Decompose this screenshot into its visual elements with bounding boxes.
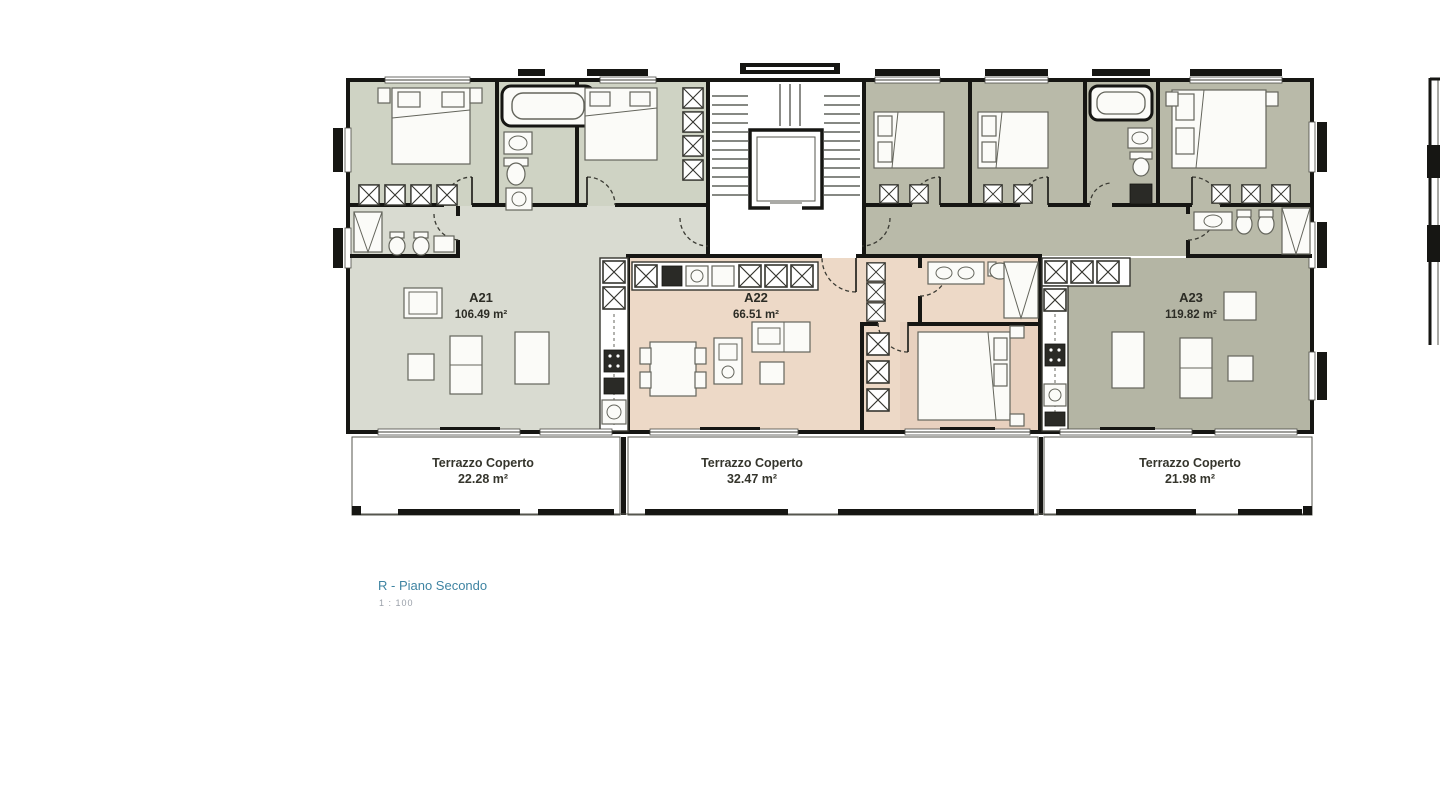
terrace-1-area: 22.28 m² xyxy=(458,472,508,486)
shower xyxy=(1282,208,1310,254)
dining-table xyxy=(640,342,706,396)
bed xyxy=(978,112,1048,168)
window-door xyxy=(1215,429,1297,435)
stair-core xyxy=(706,80,866,258)
canopy-bar xyxy=(875,69,940,76)
terrace-2-area: 32.47 m² xyxy=(727,472,777,486)
bed xyxy=(378,88,482,164)
toilet xyxy=(389,232,405,255)
terrace-3-label: Terrazzo Coperto xyxy=(1139,456,1241,470)
bed xyxy=(1166,90,1278,168)
floor-plan-page: A21 106.49 m² A22 66.51 m² A23 119.82 m²… xyxy=(0,0,1440,811)
a21-area-label: 106.49 m² xyxy=(455,309,508,321)
sink xyxy=(504,132,532,154)
wardrobe xyxy=(984,185,1002,203)
title-block: R - Piano Secondo 1 : 100 xyxy=(378,578,487,608)
stove xyxy=(662,266,682,286)
bed xyxy=(585,88,657,160)
terrace-2-label: Terrazzo Coperto xyxy=(701,456,803,470)
washing-machine xyxy=(506,188,532,210)
floor-title: R - Piano Secondo xyxy=(378,578,487,593)
toilet xyxy=(1236,210,1252,234)
washing-machine xyxy=(1130,184,1152,204)
a22-kitchen xyxy=(632,262,818,290)
terrace-2 xyxy=(628,437,1038,515)
dishwasher xyxy=(1045,412,1065,426)
closet xyxy=(867,263,885,281)
cabinet xyxy=(714,338,742,384)
shower xyxy=(354,212,382,252)
bidet xyxy=(1258,210,1274,234)
sink xyxy=(1128,128,1152,148)
sink xyxy=(602,400,626,424)
bookshelf xyxy=(1112,332,1144,388)
sideboard xyxy=(1224,292,1256,320)
shower xyxy=(1004,262,1038,318)
canopy-bar xyxy=(985,69,1048,76)
wardrobe xyxy=(880,185,898,203)
scale-note: 1 : 100 xyxy=(379,598,414,608)
a23-area-label: 119.82 m² xyxy=(1165,309,1217,321)
bed xyxy=(874,112,944,168)
bathtub xyxy=(1090,86,1152,120)
sink xyxy=(1044,384,1066,406)
adjacent-building-fragment xyxy=(1427,78,1440,345)
bed xyxy=(918,326,1024,426)
stove xyxy=(604,350,624,372)
washbasin xyxy=(434,236,454,252)
coffee-table xyxy=(515,332,549,384)
wardrobe xyxy=(1212,185,1230,203)
floor-plan-svg: A21 106.49 m² A22 66.51 m² A23 119.82 m²… xyxy=(0,0,1440,811)
elevator xyxy=(750,130,822,211)
bidet xyxy=(413,232,429,255)
terrace-labels: Terrazzo Coperto 22.28 m² Terrazzo Coper… xyxy=(432,456,1241,486)
a21-kitchen xyxy=(600,258,628,431)
sideboard xyxy=(752,322,810,352)
side-table xyxy=(408,354,434,380)
stair-skylight xyxy=(740,63,840,74)
a21-id-label: A21 xyxy=(469,290,493,305)
a22-id-label: A22 xyxy=(744,290,768,305)
canopy-bar xyxy=(587,69,648,76)
railing xyxy=(398,509,520,515)
sink xyxy=(686,266,708,286)
counter xyxy=(712,266,734,286)
sofa xyxy=(450,336,482,394)
terrace-3-area: 21.98 m² xyxy=(1165,472,1215,486)
canopy-bar xyxy=(1092,69,1150,76)
bathtub xyxy=(502,86,594,126)
a22-area-label: 66.51 m² xyxy=(733,309,779,321)
a23-id-label: A23 xyxy=(1179,290,1203,305)
wardrobe xyxy=(867,333,889,355)
side-table xyxy=(1228,356,1253,381)
canopy-bar xyxy=(1190,69,1282,76)
oven xyxy=(604,378,624,394)
wardrobe xyxy=(683,88,703,108)
stove xyxy=(1045,344,1065,366)
window-door xyxy=(540,429,612,435)
terrace-1-label: Terrazzo Coperto xyxy=(432,456,534,470)
side-table xyxy=(760,362,784,384)
sofa xyxy=(1180,338,1212,398)
wardrobe xyxy=(359,185,379,205)
canopy-bar xyxy=(518,69,545,76)
